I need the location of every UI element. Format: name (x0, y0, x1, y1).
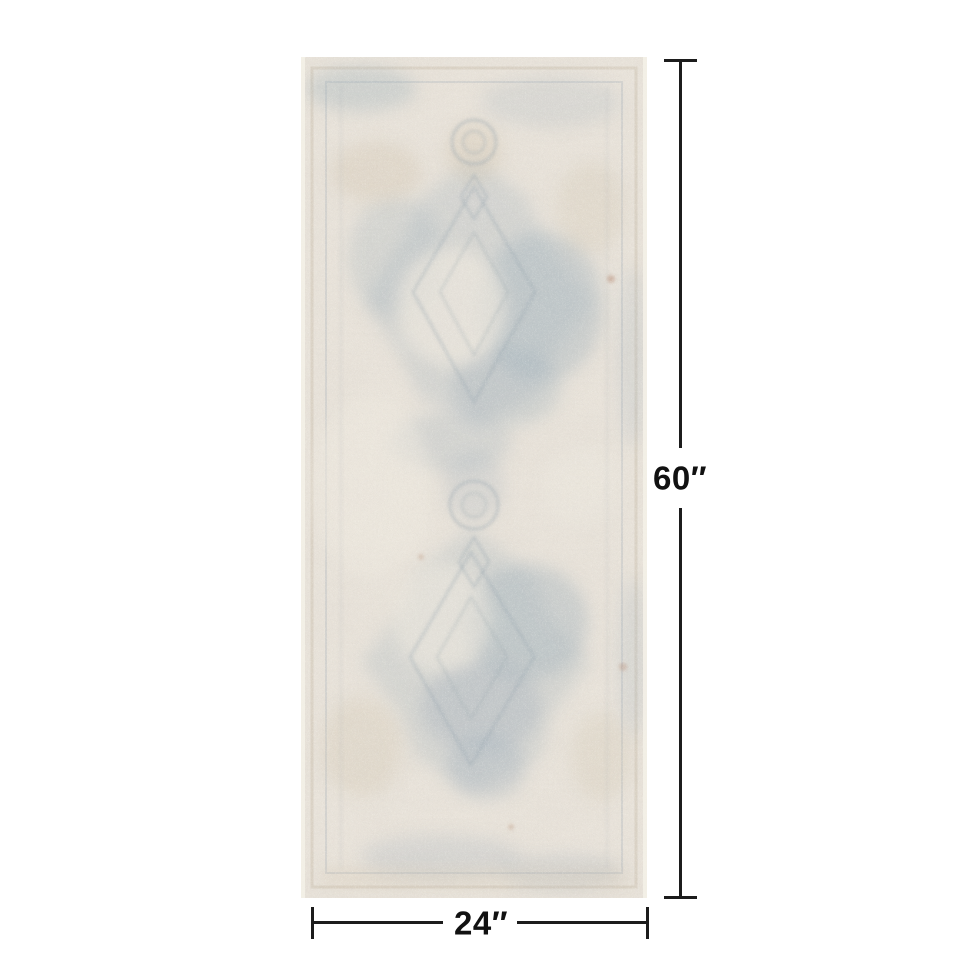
height-dimension-line-lower (679, 508, 682, 898)
height-dimension-bottom-cap (664, 896, 697, 899)
width-dimension-label: 24″ (454, 907, 508, 940)
height-dimension-line-upper (679, 59, 682, 448)
rug-image (301, 57, 647, 898)
width-dimension-right-cap (646, 907, 649, 939)
rug-artwork (301, 57, 647, 898)
height-dimension-label: 60″ (653, 462, 707, 495)
product-dimension-diagram: 60″ 24″ (0, 0, 960, 960)
width-dimension-line-left (311, 921, 443, 924)
width-dimension-line-right (517, 921, 649, 924)
